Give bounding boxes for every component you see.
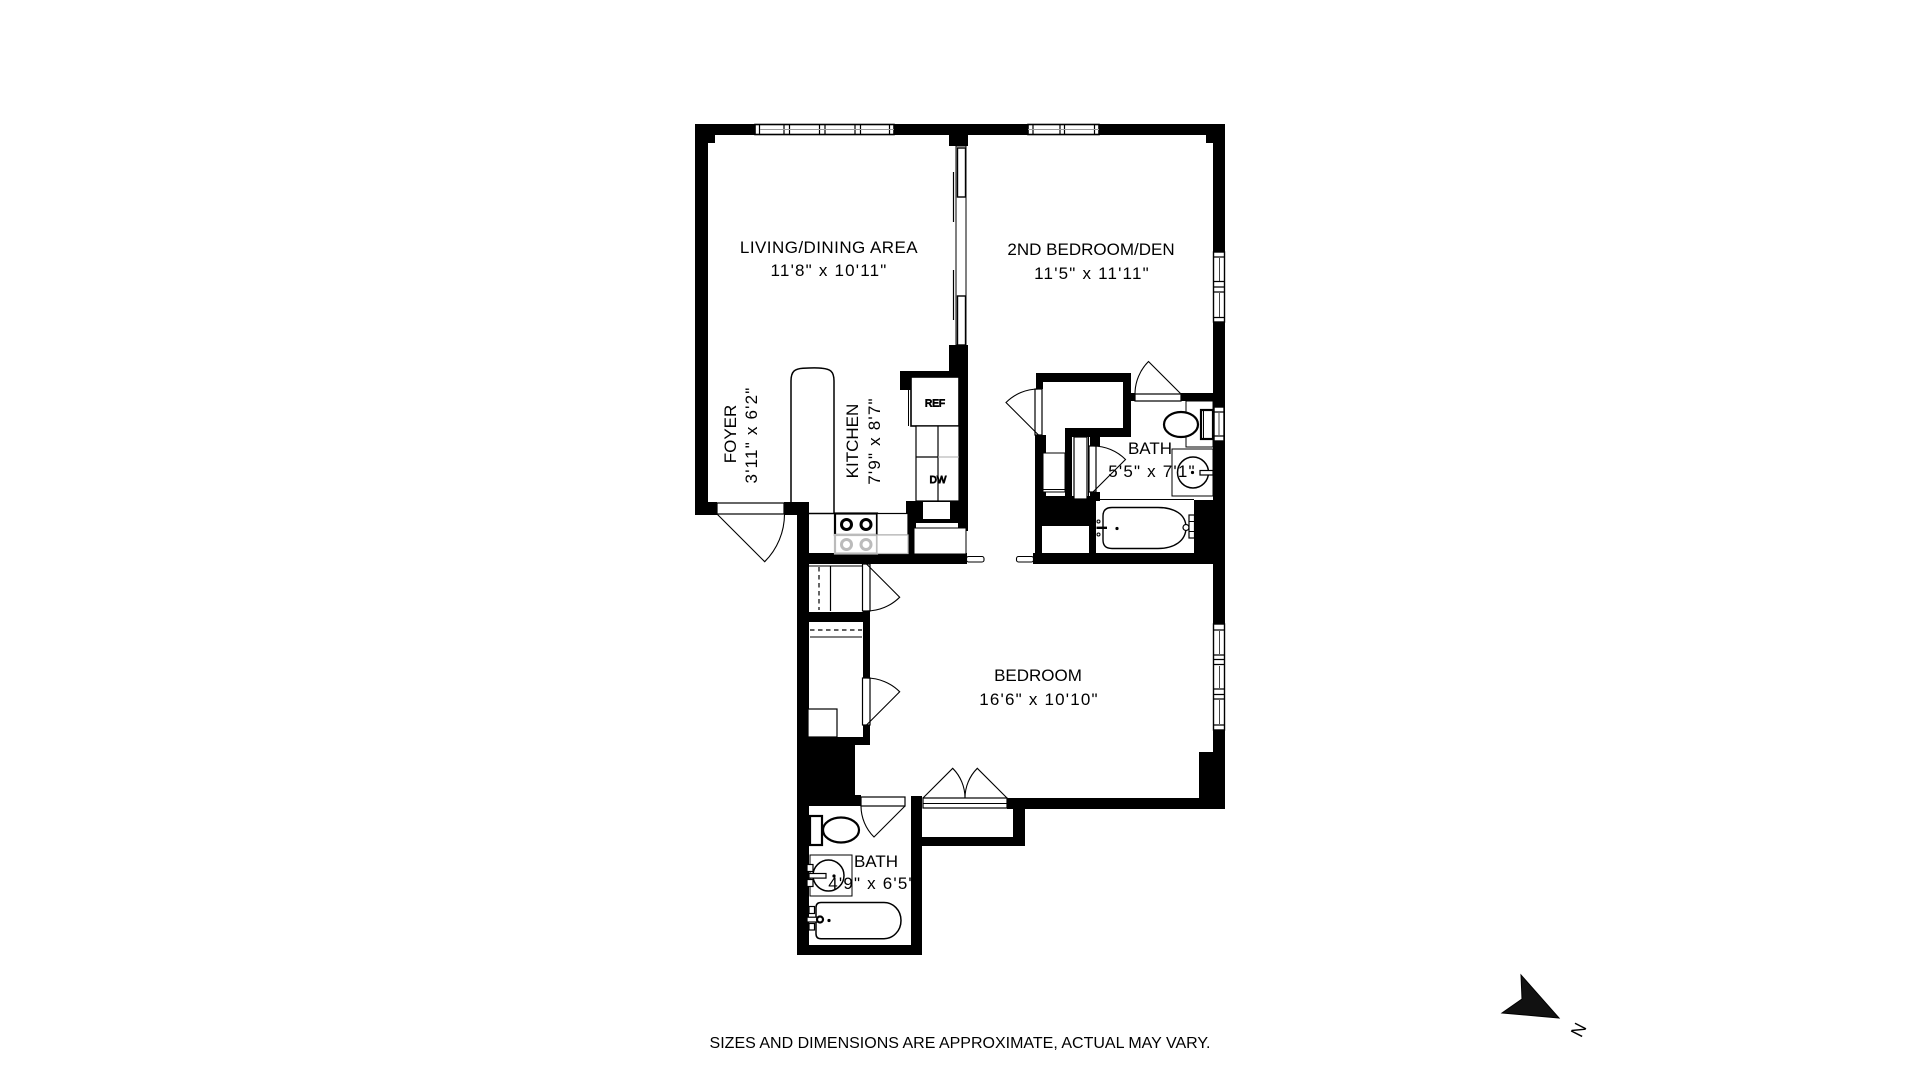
svg-text:7'9" x 8'7": 7'9" x 8'7" (865, 397, 884, 485)
svg-text:BATH: BATH (1128, 439, 1172, 458)
svg-text:11'8" x 10'11": 11'8" x 10'11" (771, 261, 888, 280)
svg-text:SIZES AND DIMENSIONS ARE APPRO: SIZES AND DIMENSIONS ARE APPROXIMATE, AC… (710, 1035, 1211, 1052)
svg-text:FOYER: FOYER (721, 405, 740, 464)
svg-text:5'5" x 7'1": 5'5" x 7'1" (1108, 462, 1196, 481)
svg-text:16'6" x 10'10": 16'6" x 10'10" (979, 690, 1099, 709)
svg-text:DW: DW (930, 475, 947, 486)
svg-text:3'11" x 6'2": 3'11" x 6'2" (742, 387, 761, 484)
svg-text:LIVING/DINING AREA: LIVING/DINING AREA (740, 238, 918, 257)
svg-text:REF: REF (925, 399, 945, 410)
svg-text:4'9" x 6'5": 4'9" x 6'5" (828, 874, 916, 893)
svg-text:BEDROOM: BEDROOM (994, 666, 1082, 685)
svg-text:KITCHEN: KITCHEN (843, 404, 862, 479)
svg-text:BATH: BATH (854, 852, 898, 871)
svg-text:11'5" x 11'11": 11'5" x 11'11" (1034, 264, 1150, 283)
svg-text:2ND BEDROOM/DEN: 2ND BEDROOM/DEN (1007, 240, 1174, 259)
